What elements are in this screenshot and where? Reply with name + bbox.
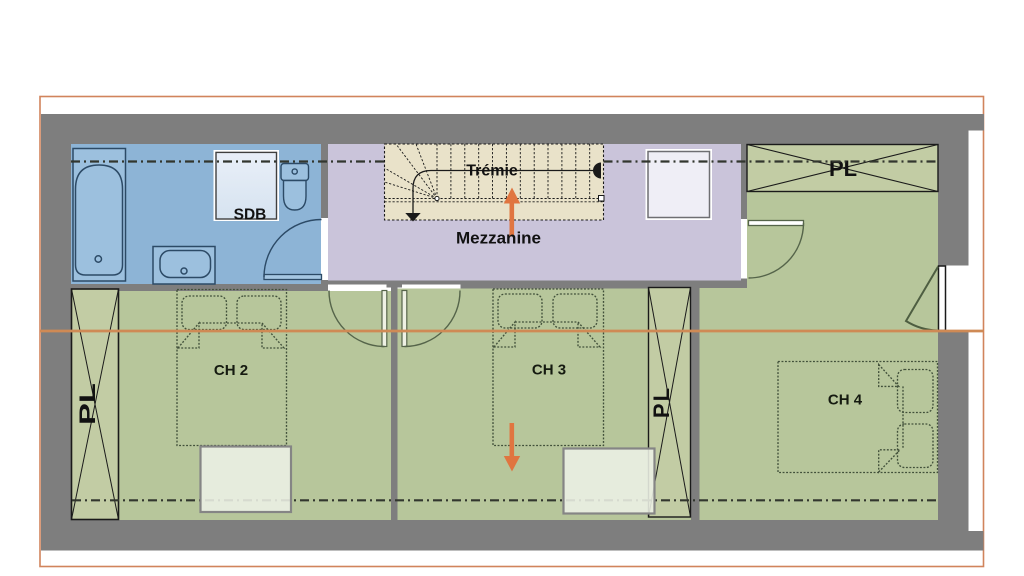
svg-text:Mezzanine: Mezzanine	[456, 229, 541, 248]
svg-text:PL: PL	[829, 156, 857, 181]
svg-text:CH 3: CH 3	[532, 362, 566, 379]
svg-text:SDB: SDB	[234, 207, 267, 224]
svg-text:Trémie: Trémie	[466, 163, 518, 180]
svg-text:PL: PL	[75, 383, 100, 425]
svg-text:PL: PL	[649, 386, 674, 418]
svg-text:CH 2: CH 2	[214, 362, 248, 379]
svg-text:CH 4: CH 4	[828, 392, 863, 409]
